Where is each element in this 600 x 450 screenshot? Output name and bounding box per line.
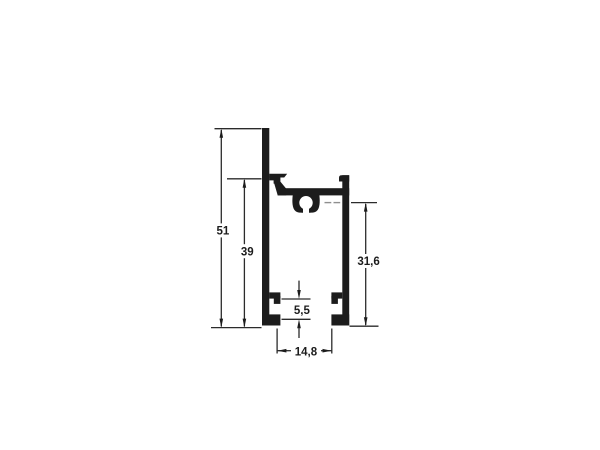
svg-text:51: 51	[217, 226, 230, 238]
svg-text:5,5: 5,5	[294, 305, 311, 317]
svg-text:39: 39	[241, 246, 254, 258]
svg-text:31,6: 31,6	[357, 256, 379, 268]
svg-text:14,8: 14,8	[295, 346, 318, 358]
